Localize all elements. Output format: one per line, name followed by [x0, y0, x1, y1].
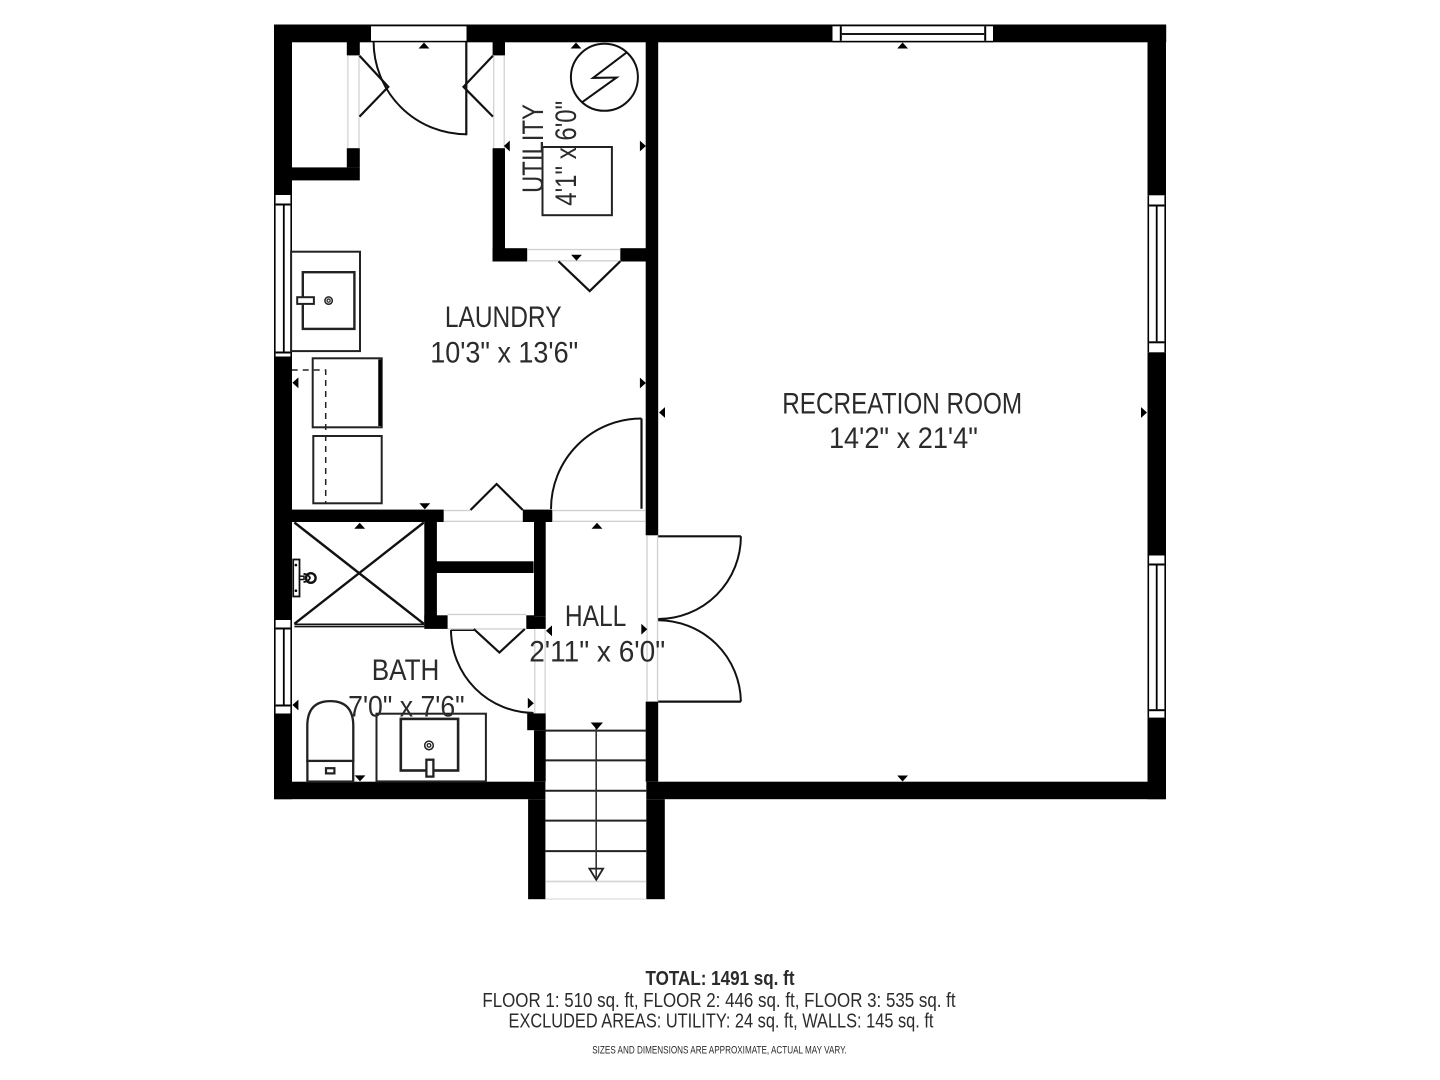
svg-text:EXCLUDED AREAS: UTILITY: 24 sq: EXCLUDED AREAS: UTILITY: 24 sq. ft, WALL… [509, 1010, 934, 1033]
svg-text:HALL: HALL [565, 600, 627, 633]
svg-text:RECREATION ROOM: RECREATION ROOM [782, 388, 1022, 421]
svg-text:7'0" x 7'6": 7'0" x 7'6" [348, 691, 465, 724]
svg-text:LAUNDRY: LAUNDRY [445, 301, 562, 334]
svg-text:SIZES AND DIMENSIONS ARE APPRO: SIZES AND DIMENSIONS ARE APPROXIMATE, AC… [592, 1045, 847, 1057]
svg-text:14'2" x 21'4": 14'2" x 21'4" [829, 422, 978, 455]
svg-text:UTILITY: UTILITY [517, 104, 550, 193]
svg-text:BATH: BATH [372, 654, 440, 687]
svg-text:4'1" x 6'0": 4'1" x 6'0" [550, 101, 583, 206]
svg-text:10'3" x 13'6": 10'3" x 13'6" [430, 337, 578, 370]
svg-text:TOTAL: 1491 sq. ft: TOTAL: 1491 sq. ft [646, 967, 795, 990]
svg-text:2'11" x 6'0": 2'11" x 6'0" [529, 636, 665, 669]
